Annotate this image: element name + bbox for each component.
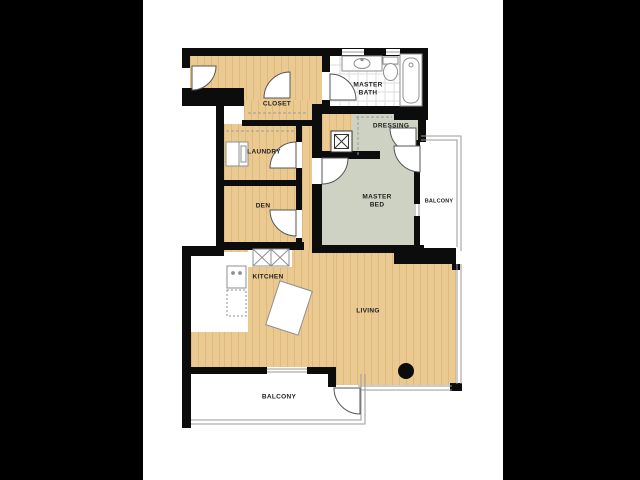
wall [216, 104, 224, 254]
wall [420, 48, 428, 114]
hallway-strip [302, 124, 312, 253]
living-label: LIVING [356, 308, 379, 315]
wall [186, 48, 428, 56]
wall [224, 180, 296, 186]
master-bath-label-line2: BATH [359, 90, 378, 97]
wall [296, 124, 302, 142]
wall [182, 250, 191, 428]
room-master-bed [322, 157, 414, 247]
room-kitchen-left [191, 332, 224, 367]
wall [224, 242, 304, 250]
wall [414, 140, 420, 146]
master-bed-label-line2: BED [370, 202, 385, 209]
wall [418, 114, 426, 142]
room-den [224, 186, 296, 242]
balcony-bottom-label: BALCONY [262, 394, 296, 401]
kitchen-counter [191, 252, 248, 332]
wall [182, 88, 244, 106]
room-living-west [312, 253, 336, 367]
wall [312, 104, 322, 158]
mechanical-alcove [322, 114, 352, 151]
wall [322, 151, 380, 159]
balcony-right-label: BALCONY [425, 199, 454, 206]
wall [452, 264, 460, 270]
wall [182, 48, 190, 68]
wall [450, 383, 462, 391]
wall [414, 216, 420, 247]
wall [191, 367, 267, 374]
wall [322, 48, 330, 72]
closet-label: CLOSET [263, 101, 291, 108]
master-bath-label-line1: MASTER [353, 82, 382, 89]
wall [328, 367, 336, 387]
wall [312, 184, 322, 245]
wall [296, 168, 302, 210]
laundry-label: LAUNDRY [247, 149, 281, 156]
master-bed-label-line1: MASTER [362, 194, 391, 201]
wall [394, 248, 456, 264]
den-label: DEN [256, 203, 271, 210]
kitchen-label: KITCHEN [253, 274, 284, 281]
kitchen-appliance-strip [248, 250, 292, 267]
screenshot-root: { "scene": { "description": "Apartment f… [0, 0, 640, 480]
room-living [336, 253, 456, 385]
wall [414, 168, 420, 204]
dressing-label: DRESSING [373, 123, 409, 130]
